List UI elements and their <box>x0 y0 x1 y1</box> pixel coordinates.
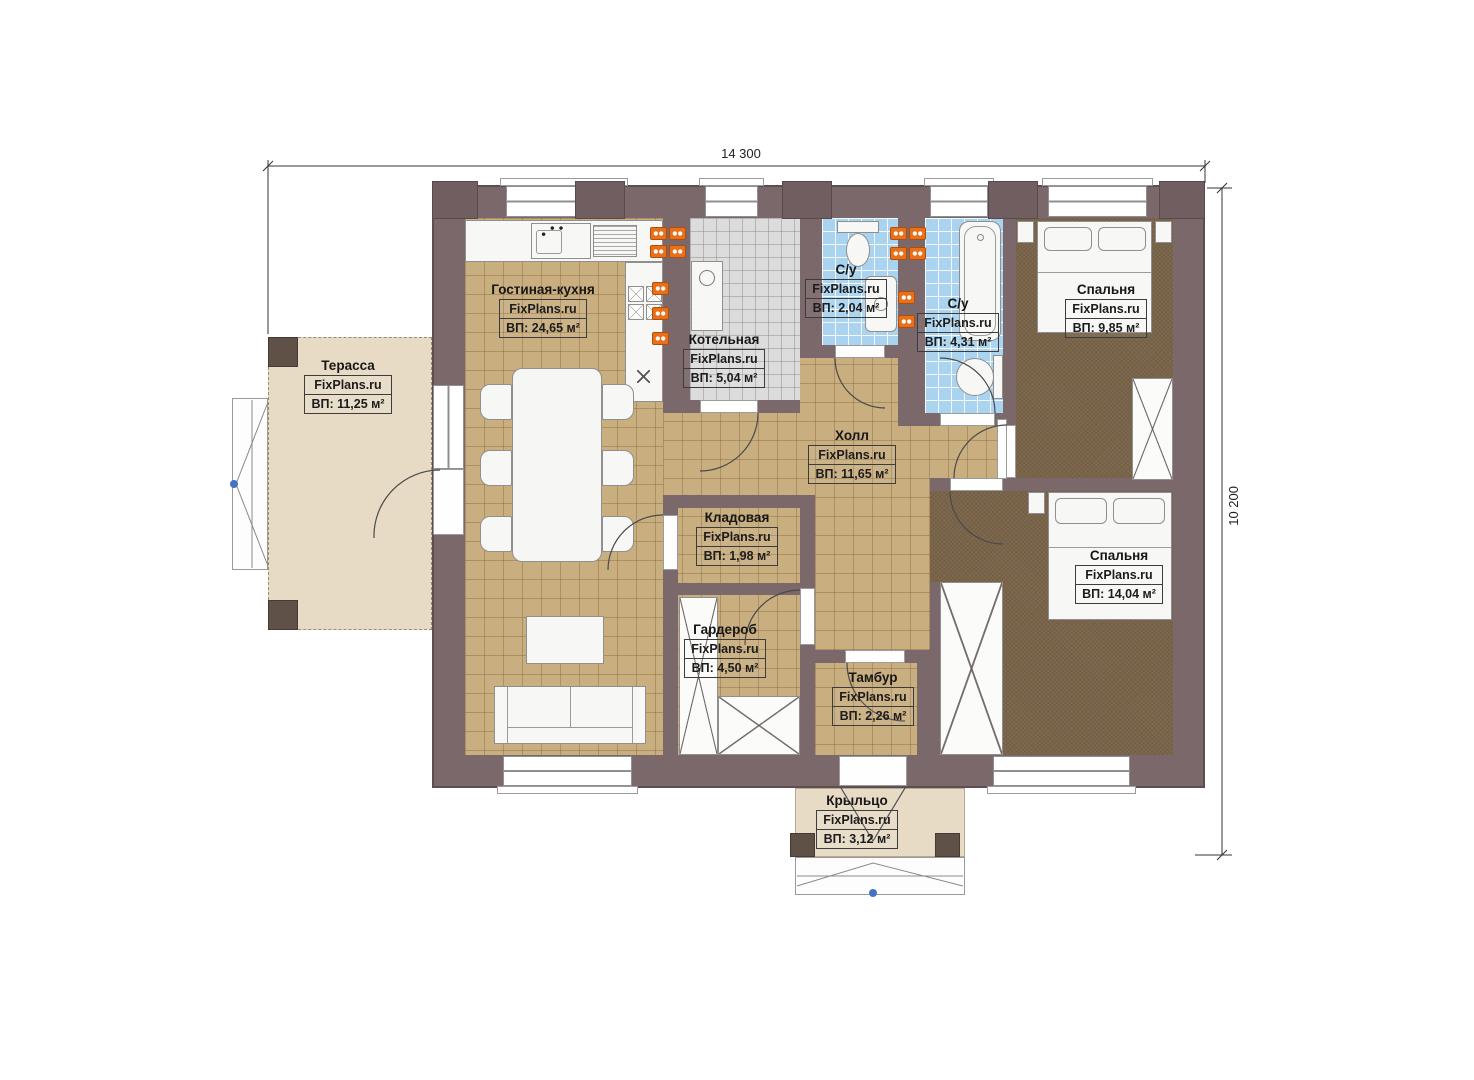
watermark: FixPlans.ru <box>817 811 896 829</box>
dimension-width-label: 14 300 <box>696 146 786 161</box>
room-name: Крыльцо <box>826 793 887 808</box>
room-label-porch: Крыльцо FixPlans.ru ВП: 3,12 м² <box>797 793 917 849</box>
room-name: С/у <box>835 262 856 277</box>
watermark: FixPlans.ru <box>685 640 764 658</box>
room-area: ВП: 2,04 м² <box>806 298 885 317</box>
watermark: FixPlans.ru <box>1076 566 1162 584</box>
room-name: Котельная <box>689 332 760 347</box>
room-label-box: FixPlans.ru ВП: 5,04 м² <box>683 349 764 388</box>
door-arc-bedroom-1 <box>954 425 1007 478</box>
room-name: Терасса <box>321 358 375 373</box>
watermark: FixPlans.ru <box>833 688 912 706</box>
room-label-terrace: Терасса FixPlans.ru ВП: 11,25 м² <box>288 358 408 414</box>
room-name: Тамбур <box>849 670 898 685</box>
room-area: ВП: 2,26 м² <box>833 706 912 725</box>
room-label-box: FixPlans.ru ВП: 2,26 м² <box>832 687 913 726</box>
room-label-box: FixPlans.ru ВП: 14,04 м² <box>1075 565 1163 604</box>
room-label-living-kitchen: Гостиная-кухня FixPlans.ru ВП: 24,65 м² <box>483 282 603 338</box>
room-area: ВП: 9,85 м² <box>1066 318 1145 337</box>
room-label-hall: Холл FixPlans.ru ВП: 11,65 м² <box>792 428 912 484</box>
room-name: Гардероб <box>693 622 757 637</box>
room-area: ВП: 1,98 м² <box>697 546 776 565</box>
room-label-box: FixPlans.ru ВП: 11,25 м² <box>304 375 391 414</box>
room-label-bathroom-large: С/у FixPlans.ru ВП: 4,31 м² <box>900 296 1016 352</box>
room-label-bedroom-2: Спальня FixPlans.ru ВП: 14,04 м² <box>1059 548 1179 604</box>
floor-plan: 14 300 10 200 Гостиная-кухня FixPlans.ru… <box>0 0 1474 1080</box>
watermark: FixPlans.ru <box>500 300 586 318</box>
watermark: FixPlans.ru <box>806 280 885 298</box>
dimension-height-label: 10 200 <box>1226 486 1241 526</box>
room-label-box: FixPlans.ru ВП: 9,85 м² <box>1065 299 1146 338</box>
watermark: FixPlans.ru <box>809 446 894 464</box>
room-label-box: FixPlans.ru ВП: 24,65 м² <box>499 299 587 338</box>
room-area: ВП: 4,31 м² <box>918 332 997 351</box>
room-label-storage: Кладовая FixPlans.ru ВП: 1,98 м² <box>677 510 797 566</box>
room-area: ВП: 11,25 м² <box>305 394 390 413</box>
porch-steps-lines <box>797 863 963 886</box>
room-label-box: FixPlans.ru ВП: 11,65 м² <box>808 445 895 484</box>
door-arc-bathroom-small <box>835 358 885 408</box>
door-arc-storage <box>608 515 663 570</box>
room-area: ВП: 14,04 м² <box>1076 584 1162 603</box>
room-name: Гостиная-кухня <box>491 282 594 297</box>
marker-dot <box>230 480 238 488</box>
room-name: Холл <box>835 428 869 443</box>
door-arc-terrace <box>374 470 440 538</box>
door-arc-bedroom-2 <box>950 491 1003 544</box>
room-label-vestibule: Тамбур FixPlans.ru ВП: 2,26 м² <box>813 670 933 726</box>
room-area: ВП: 11,65 м² <box>809 464 894 483</box>
room-label-wardrobe: Гардероб FixPlans.ru ВП: 4,50 м² <box>665 622 785 678</box>
room-name: С/у <box>947 296 968 311</box>
watermark: FixPlans.ru <box>1066 300 1145 318</box>
room-name: Спальня <box>1077 282 1135 297</box>
watermark: FixPlans.ru <box>697 528 776 546</box>
room-area: ВП: 3,12 м² <box>817 829 896 848</box>
door-arc-bathroom-large <box>940 358 995 413</box>
marker-dot <box>869 889 877 897</box>
room-area: ВП: 5,04 м² <box>684 368 763 387</box>
room-area: ВП: 4,50 м² <box>685 658 764 677</box>
room-label-box: FixPlans.ru ВП: 1,98 м² <box>696 527 777 566</box>
room-label-box: FixPlans.ru ВП: 4,31 м² <box>917 313 998 352</box>
watermark: FixPlans.ru <box>918 314 997 332</box>
watermark: FixPlans.ru <box>305 376 390 394</box>
watermark: FixPlans.ru <box>684 350 763 368</box>
room-label-bathroom-small: С/у FixPlans.ru ВП: 2,04 м² <box>788 262 904 318</box>
room-name: Спальня <box>1090 548 1148 563</box>
room-area: ВП: 24,65 м² <box>500 318 586 337</box>
room-name: Кладовая <box>705 510 770 525</box>
room-label-box: FixPlans.ru ВП: 4,50 м² <box>684 639 765 678</box>
room-label-boiler: Котельная FixPlans.ru ВП: 5,04 м² <box>664 332 784 388</box>
room-label-box: FixPlans.ru ВП: 3,12 м² <box>816 810 897 849</box>
room-label-box: FixPlans.ru ВП: 2,04 м² <box>805 279 886 318</box>
door-arc-boiler <box>700 413 758 471</box>
room-label-bedroom-1: Спальня FixPlans.ru ВП: 9,85 м² <box>1046 282 1166 338</box>
